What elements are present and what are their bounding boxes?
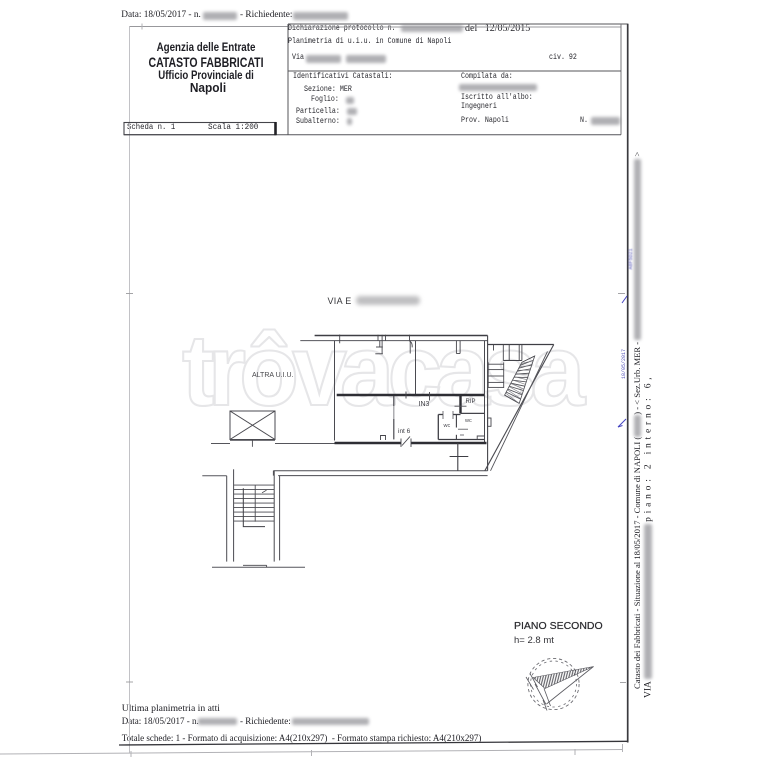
svg-text:18/05/2017: 18/05/2017 (621, 349, 627, 379)
svg-text:A8F5D21: A8F5D21 (628, 248, 634, 269)
